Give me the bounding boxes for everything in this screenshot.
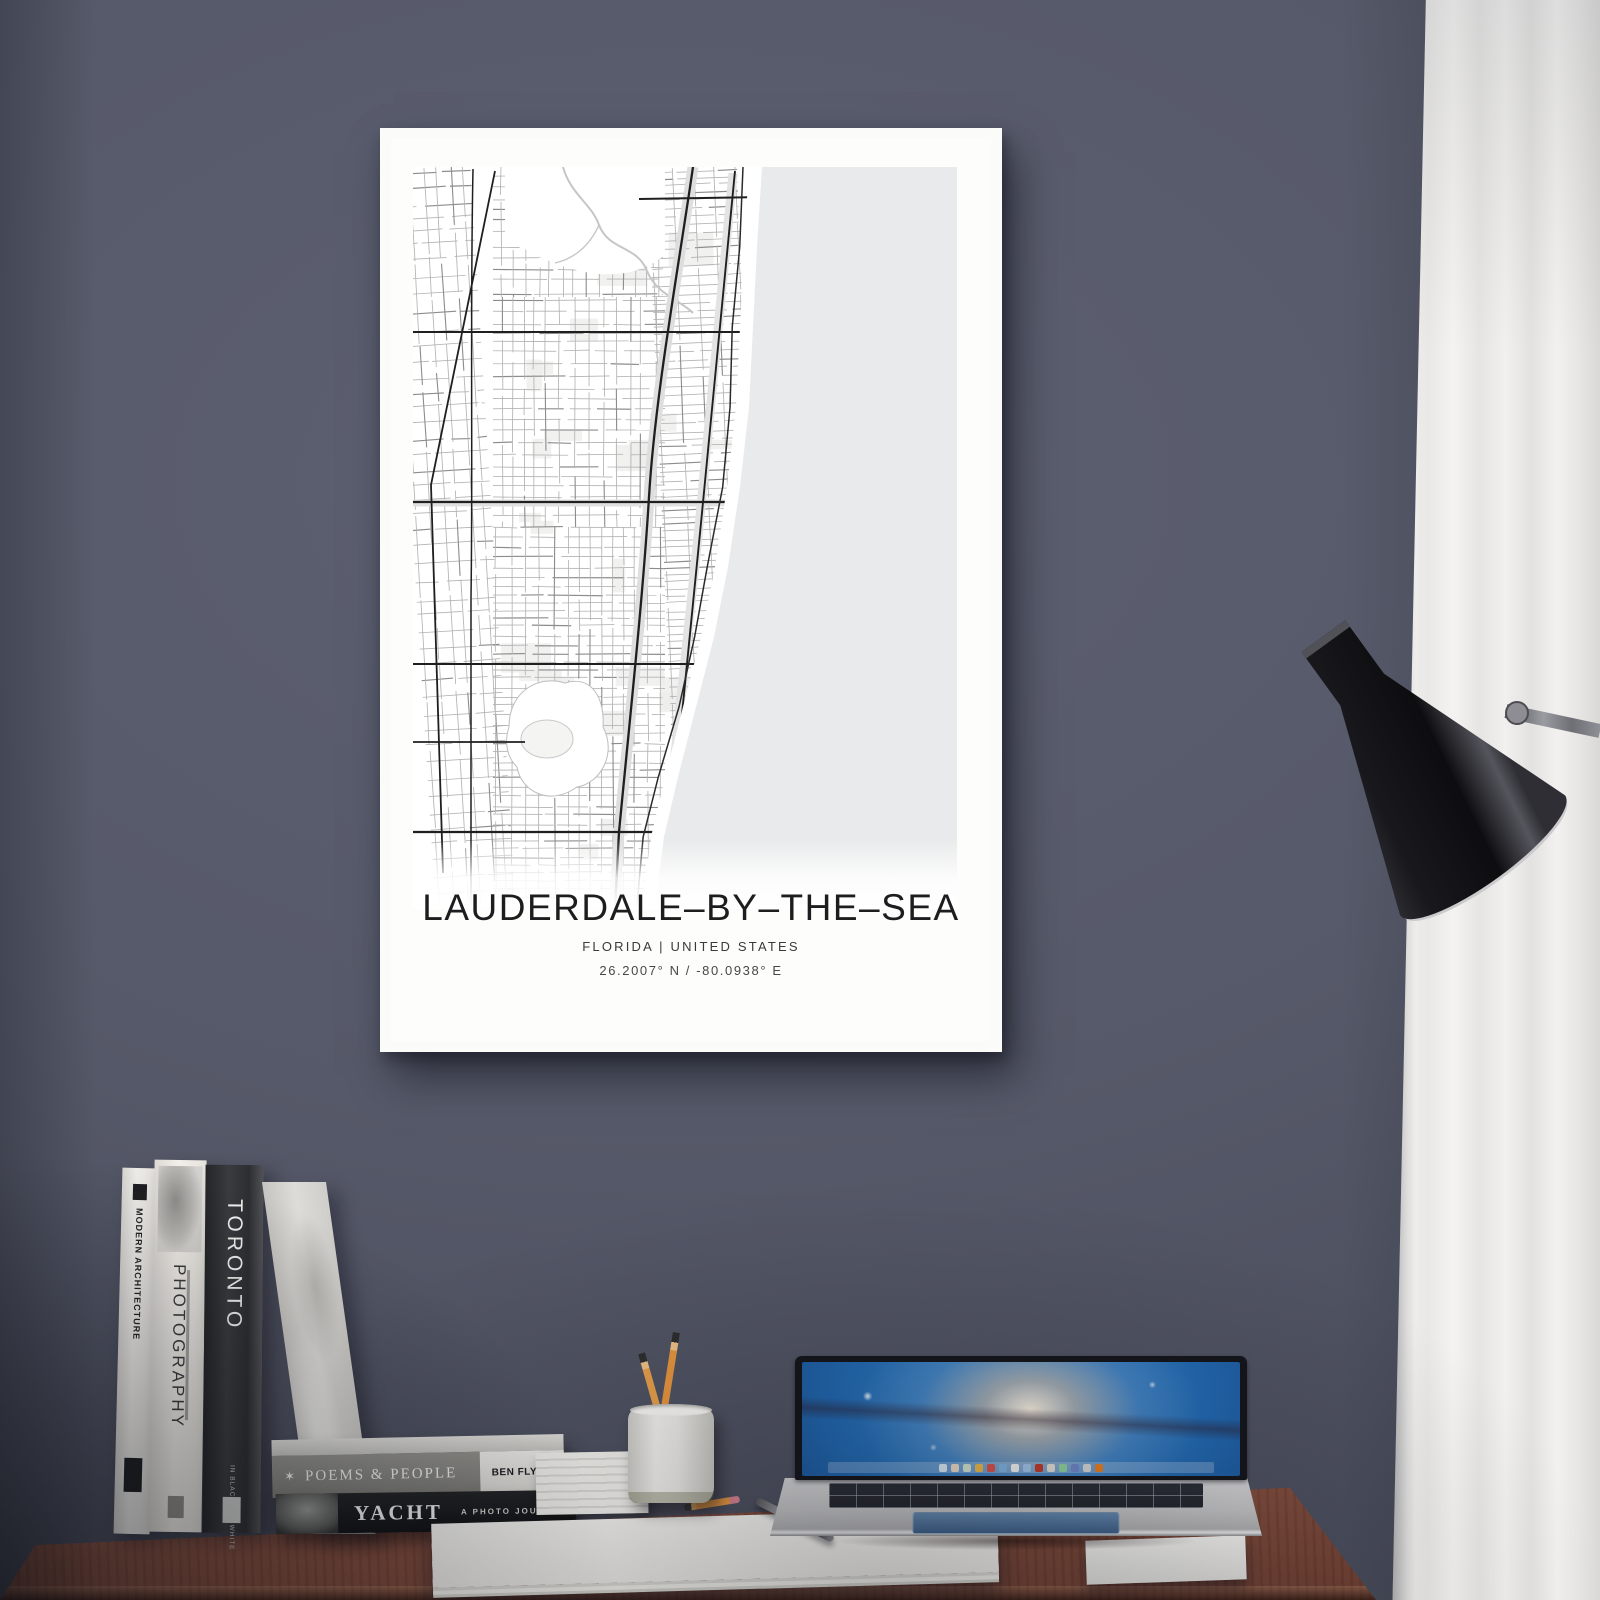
poster-coordinates: 26.2007° N / -80.0938° E xyxy=(391,963,991,978)
room-scene: LAUDERDALE–BY–THE–SEA FLORIDA | UNITED S… xyxy=(0,0,1600,1600)
spine-author-block xyxy=(168,1496,184,1518)
spine-author-block xyxy=(124,1458,143,1492)
lamp-arm xyxy=(1506,702,1600,731)
lamp-shade xyxy=(1268,585,1583,940)
book-poems-and-people: ✶ POEMS & PEOPLE BEN FLYNN xyxy=(271,1434,564,1498)
book-toronto: TORONTO IN BLACK AND WHITE xyxy=(202,1165,263,1533)
laptop-dock xyxy=(828,1462,1213,1473)
laptop-screen xyxy=(795,1356,1247,1480)
spine-logo-block xyxy=(133,1184,147,1200)
framed-map-poster: LAUDERDALE–BY–THE–SEA FLORIDA | UNITED S… xyxy=(380,128,1002,1052)
spine-photo-image xyxy=(276,1493,339,1534)
laptop-trackpad xyxy=(913,1512,1120,1534)
lamp-joint-knob xyxy=(1506,702,1528,724)
book-spine-title: POEMS & PEOPLE xyxy=(305,1465,458,1485)
laptop-keyboard xyxy=(829,1483,1203,1508)
street-map-graphic xyxy=(413,167,957,909)
book-spine-title: TORONTO xyxy=(203,1199,263,1449)
spine-photo-image xyxy=(157,1166,202,1253)
poster-title: LAUDERDALE–BY–THE–SEA xyxy=(391,887,991,929)
book-photography: PHOTOGRAPHY xyxy=(149,1160,206,1533)
book-spine-title: PHOTOGRAPHY xyxy=(150,1264,205,1485)
spine-publisher-block xyxy=(222,1497,240,1523)
book-spine-subtitle: IN BLACK AND WHITE xyxy=(202,1465,261,1586)
poster-region-line: FLORIDA | UNITED STATES xyxy=(391,939,991,954)
book-spine-title: YACHT xyxy=(354,1499,443,1525)
pencil-cup xyxy=(628,1408,714,1503)
laptop-base xyxy=(770,1478,1262,1536)
laptop-display-galaxy-wallpaper xyxy=(802,1362,1240,1476)
poster-caption: LAUDERDALE–BY–THE–SEA FLORIDA | UNITED S… xyxy=(391,887,991,978)
desk-lamp xyxy=(1268,585,1600,955)
star-icon: ✶ xyxy=(284,1469,295,1485)
